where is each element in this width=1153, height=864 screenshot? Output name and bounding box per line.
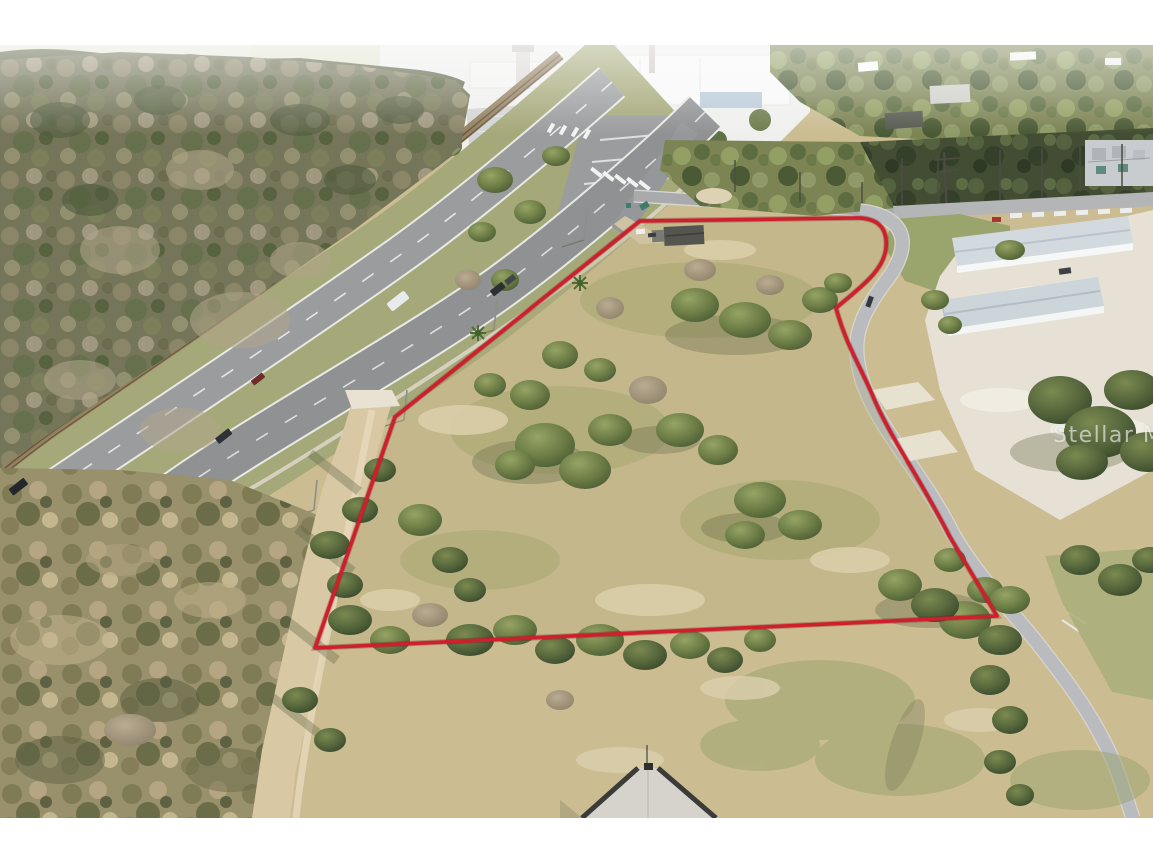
screenshot-canvas: Stellar MLS <box>0 0 1153 864</box>
red-car <box>992 217 1001 222</box>
trail-apron <box>345 390 400 409</box>
road-sign <box>626 203 631 208</box>
electrical-substation <box>1085 140 1153 186</box>
watermark: Stellar MLS <box>1053 423 1153 448</box>
aerial-photo: Stellar MLS <box>0 45 1153 818</box>
glare-overlay <box>0 45 1153 135</box>
top-white-margin <box>0 0 1153 45</box>
bottom-white-margin <box>0 818 1153 864</box>
aerial-photo-art <box>0 45 1153 818</box>
